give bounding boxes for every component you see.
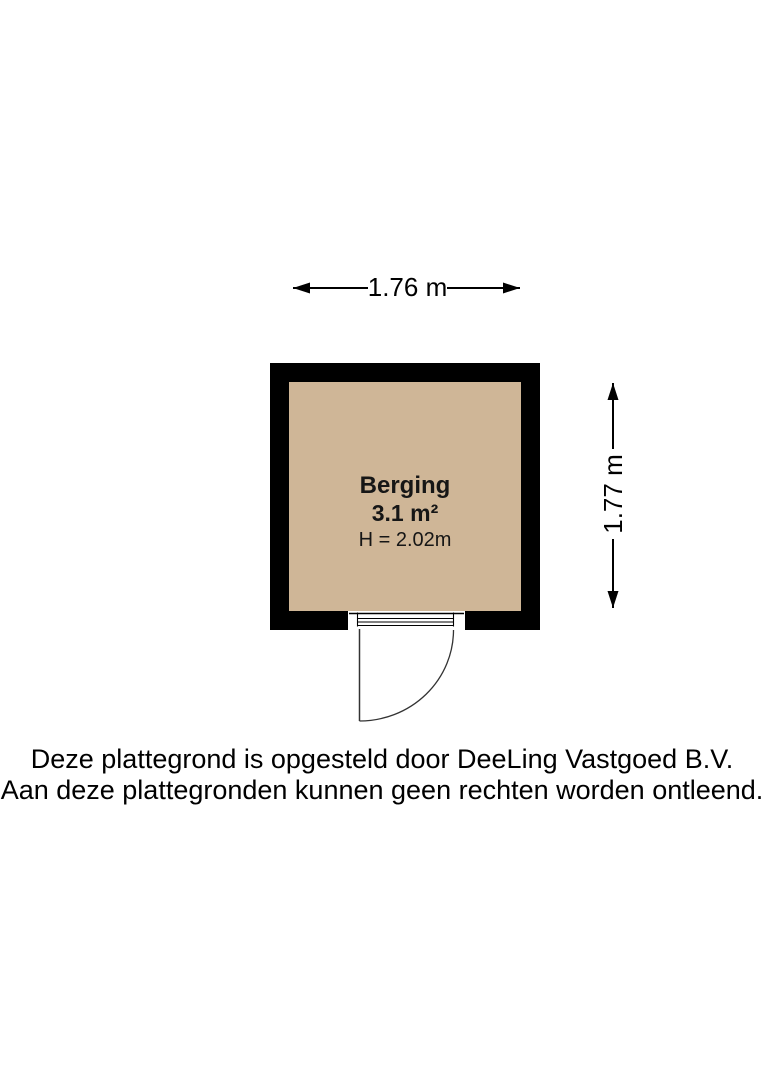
room-label: Berging 3.1 m² H = 2.02m [270, 472, 540, 554]
floorplan-page: 1.76 m 1.77 m Berging 3.1 m² H = 2.02m D… [0, 0, 764, 1080]
room-ceiling-height: H = 2.02m [270, 527, 540, 554]
disclaimer: Deze plattegrond is opgesteld door DeeLi… [0, 744, 764, 806]
height-dimension-label: 1.77 m [598, 429, 628, 559]
room-name: Berging [270, 472, 540, 500]
width-dimension-label: 1.76 m [342, 272, 473, 302]
disclaimer-line1: Deze plattegrond is opgesteld door DeeLi… [0, 744, 764, 775]
room-area: 3.1 m² [270, 500, 540, 527]
disclaimer-line2: Aan deze plattegronden kunnen geen recht… [0, 775, 764, 806]
